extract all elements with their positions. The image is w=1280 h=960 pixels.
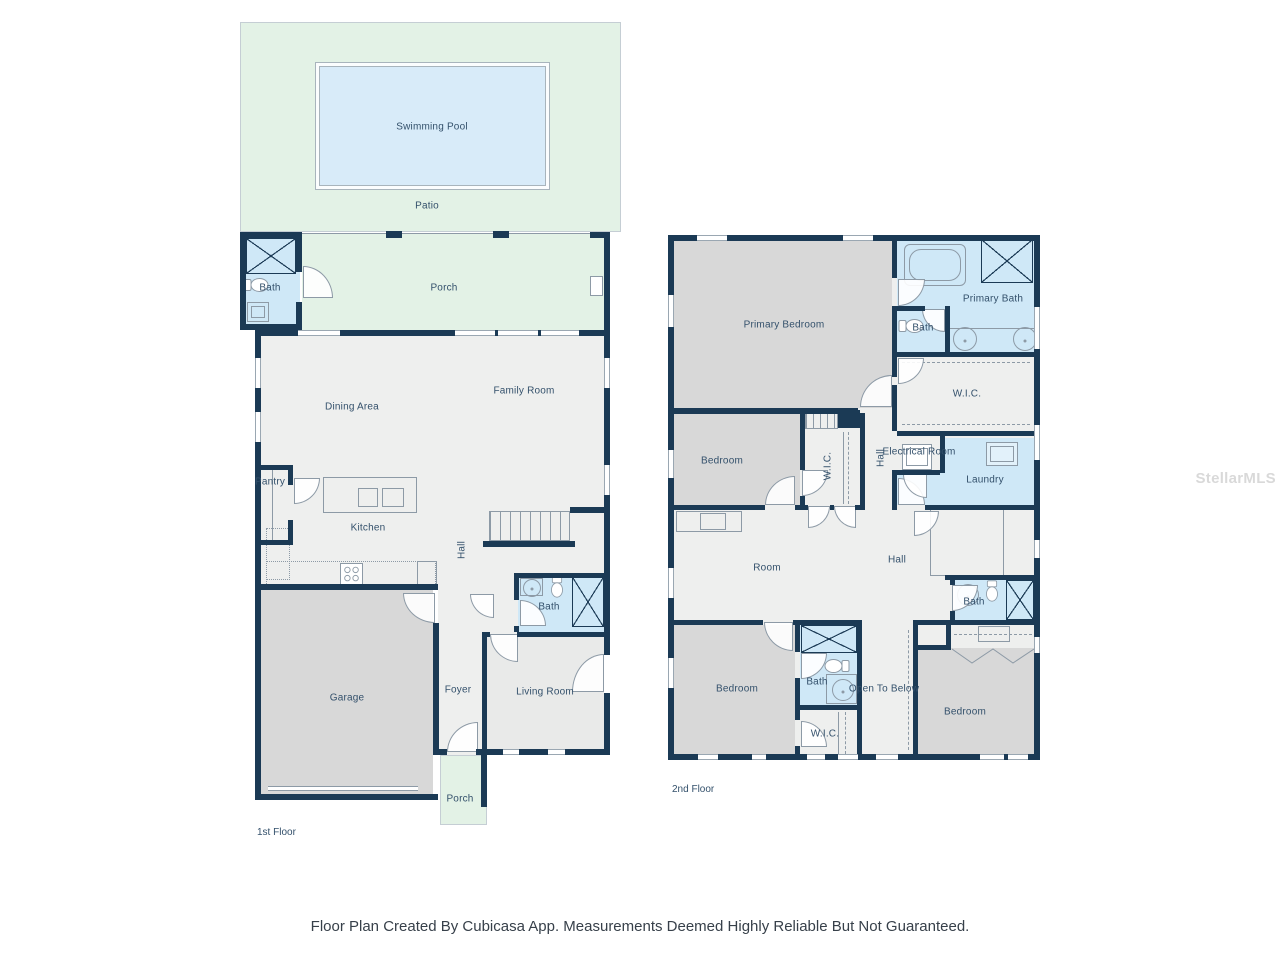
room-label: Family Room (493, 386, 554, 397)
window (697, 235, 727, 241)
wall-segment (897, 306, 925, 311)
stairs (489, 511, 570, 541)
wall-segment (674, 408, 838, 414)
room-label: Garage (330, 693, 365, 704)
room-label: Dining Area (325, 402, 379, 413)
window (548, 749, 565, 755)
wall-segment (800, 496, 805, 505)
window (604, 465, 610, 495)
wall-segment (668, 620, 763, 625)
wall-segment (482, 632, 487, 755)
room-label: Bath (259, 283, 280, 294)
window (498, 330, 538, 336)
wall-segment (433, 623, 439, 755)
room-label: Kitchen (351, 523, 386, 534)
floor-name-label: 2nd Floor (672, 784, 714, 795)
sink-basin (251, 306, 265, 318)
porch-post (493, 231, 509, 238)
garage-door (268, 786, 418, 791)
room-label: Bath (963, 597, 984, 608)
wall-segment (433, 749, 447, 755)
room-label: Bath (912, 323, 933, 334)
wall-segment (892, 352, 897, 357)
wall-segment (517, 632, 609, 637)
wall-segment (892, 505, 897, 510)
wall-block (838, 410, 860, 428)
floor-plan-image: Swimming Pool Patio Porch Bath Family Ro… (0, 0, 1280, 960)
stove-icon (340, 563, 363, 585)
wall-segment (261, 584, 438, 590)
toilet-icon (549, 576, 565, 598)
shower-icon (801, 625, 857, 653)
room-label: Bedroom (701, 456, 743, 467)
stellar-mls-watermark: StellarMLS (1195, 470, 1276, 487)
toilet-icon (984, 580, 1000, 602)
closet-shelf (805, 412, 838, 429)
window (1008, 754, 1028, 760)
wall-segment (946, 625, 951, 647)
wall-segment (514, 578, 519, 600)
closet-shelf-line (843, 432, 844, 504)
room-label: Bedroom (716, 684, 758, 695)
room-label: Primary Bedroom (744, 320, 825, 331)
island-cooktop (382, 488, 404, 507)
room-label: Room (753, 563, 780, 574)
room-label: Pantry (255, 477, 285, 488)
wall-segment (950, 575, 955, 585)
window (1034, 307, 1040, 349)
room-label: Patio (415, 201, 439, 212)
room-label: Porch (430, 283, 457, 294)
wall-segment (795, 746, 800, 755)
bathtub-basin (909, 249, 961, 281)
window (1034, 540, 1040, 558)
wall-segment (258, 540, 293, 545)
porch-window-box (590, 276, 603, 296)
kitchenette-sink-icon (700, 513, 726, 530)
stairs-outline (930, 508, 1004, 576)
room-label: Swimming Pool (396, 122, 468, 133)
room-label: Porch (446, 794, 473, 805)
wall-segment (255, 794, 438, 800)
shower-icon (981, 239, 1033, 283)
shower-icon (246, 238, 296, 274)
window (1034, 637, 1040, 653)
porch-edge-line (302, 233, 600, 234)
wall-segment (892, 306, 897, 377)
window (455, 330, 495, 336)
wall-segment (897, 431, 1034, 436)
room-label: W.I.C. (823, 452, 834, 480)
room-label: Bath (806, 677, 827, 688)
window (541, 330, 579, 336)
wall-segment (830, 505, 834, 510)
laundry-sink-basin (990, 446, 1014, 462)
wall-segment (288, 470, 293, 485)
wall-segment (795, 505, 808, 510)
wall-segment (892, 241, 897, 278)
room-label: Bedroom (944, 707, 986, 718)
main-floor-area (261, 336, 604, 590)
closet-shelf (978, 626, 1010, 642)
room-label: Hall (888, 555, 906, 566)
wall-segment (481, 755, 487, 807)
window (752, 754, 766, 760)
front-porch-area (440, 755, 487, 825)
room-label: Foyer (445, 685, 472, 696)
closet-doors-icon (952, 648, 1034, 664)
wall-segment (255, 336, 261, 794)
room-label: Bath (538, 602, 559, 613)
footer-disclaimer: Floor Plan Created By Cubicasa App. Meas… (0, 918, 1280, 935)
island-sink-icon (358, 488, 378, 507)
window (604, 358, 610, 388)
window (838, 754, 858, 760)
window (298, 330, 340, 336)
window (698, 754, 718, 760)
wall-segment (296, 238, 302, 272)
wall-segment (570, 507, 605, 513)
room-label: Laundry (966, 475, 1004, 486)
room-label: Living Room (516, 687, 574, 698)
wall-segment (800, 620, 862, 625)
wall-segment (483, 541, 575, 547)
wall-segment (950, 611, 955, 620)
wall-segment (795, 678, 800, 720)
wall-segment (945, 575, 1034, 580)
wall-segment (892, 470, 940, 475)
window (668, 658, 674, 688)
room-label: Hall (457, 541, 468, 559)
room-label: W.I.C. (811, 729, 839, 740)
window (503, 749, 519, 755)
laundry-sink-icon (986, 442, 1018, 466)
room-label: W.I.C. (953, 389, 981, 400)
wall-segment (240, 232, 302, 238)
window (255, 358, 261, 388)
window (843, 235, 873, 241)
window (1034, 425, 1040, 460)
wall-segment (604, 238, 610, 330)
room-label: Electrical Room (882, 447, 955, 458)
wall-segment (296, 302, 302, 324)
room-label: Primary Bath (963, 294, 1023, 305)
closet-rod (845, 712, 846, 754)
wall-segment (514, 573, 609, 578)
window (876, 754, 898, 760)
window (668, 568, 674, 598)
wall-segment (860, 413, 865, 505)
wall-segment (913, 620, 1034, 625)
wall-segment (240, 238, 246, 330)
toilet-icon (824, 656, 850, 676)
wall-segment (945, 306, 950, 352)
wall-segment (892, 385, 897, 431)
window (668, 450, 674, 478)
window (807, 754, 825, 760)
wall-segment (793, 620, 800, 625)
back-porch-area (302, 233, 610, 330)
closet-rod (902, 424, 1030, 425)
wall-segment (925, 505, 1034, 510)
wall-segment (918, 645, 951, 650)
wall-segment (855, 505, 865, 510)
floor-name-label: 1st Floor (257, 827, 296, 838)
counter (417, 561, 437, 586)
wall-segment (668, 505, 765, 510)
shower-icon (1006, 580, 1034, 620)
room-label: Open To Below (849, 684, 919, 695)
wall-segment (897, 352, 1034, 357)
window (980, 754, 1004, 760)
wall-segment (604, 693, 610, 755)
sink-icon (953, 327, 977, 351)
wall-segment (892, 475, 897, 505)
sink-icon (247, 302, 269, 322)
shower-icon (572, 577, 604, 627)
wall-segment (800, 413, 805, 470)
closet-rod (848, 432, 849, 504)
window (255, 412, 261, 442)
window (668, 295, 674, 327)
wall-segment (487, 632, 490, 637)
porch-post (386, 231, 402, 238)
wall-segment (800, 705, 857, 710)
sink-icon (523, 579, 541, 597)
